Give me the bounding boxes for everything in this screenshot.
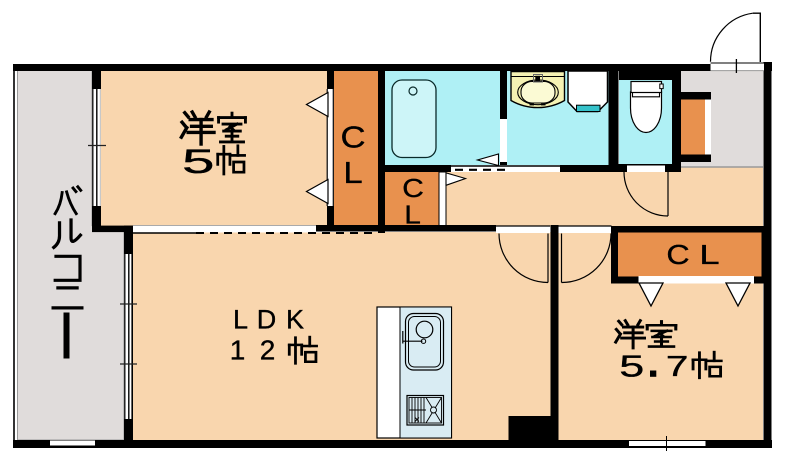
svg-text:L: L [233, 305, 248, 335]
svg-text:K: K [286, 305, 304, 335]
svg-text:L: L [699, 239, 719, 270]
svg-text:C: C [666, 240, 689, 271]
svg-text:5: 5 [182, 143, 215, 181]
svg-text:5: 5 [619, 349, 644, 384]
svg-text:D: D [257, 305, 277, 335]
svg-text:1: 1 [230, 334, 246, 365]
svg-text:L: L [343, 155, 362, 190]
svg-text:C: C [340, 119, 365, 154]
svg-text:7: 7 [666, 351, 689, 383]
svg-text:2: 2 [260, 334, 276, 365]
svg-text:C: C [402, 174, 424, 203]
svg-text:L: L [404, 200, 421, 229]
